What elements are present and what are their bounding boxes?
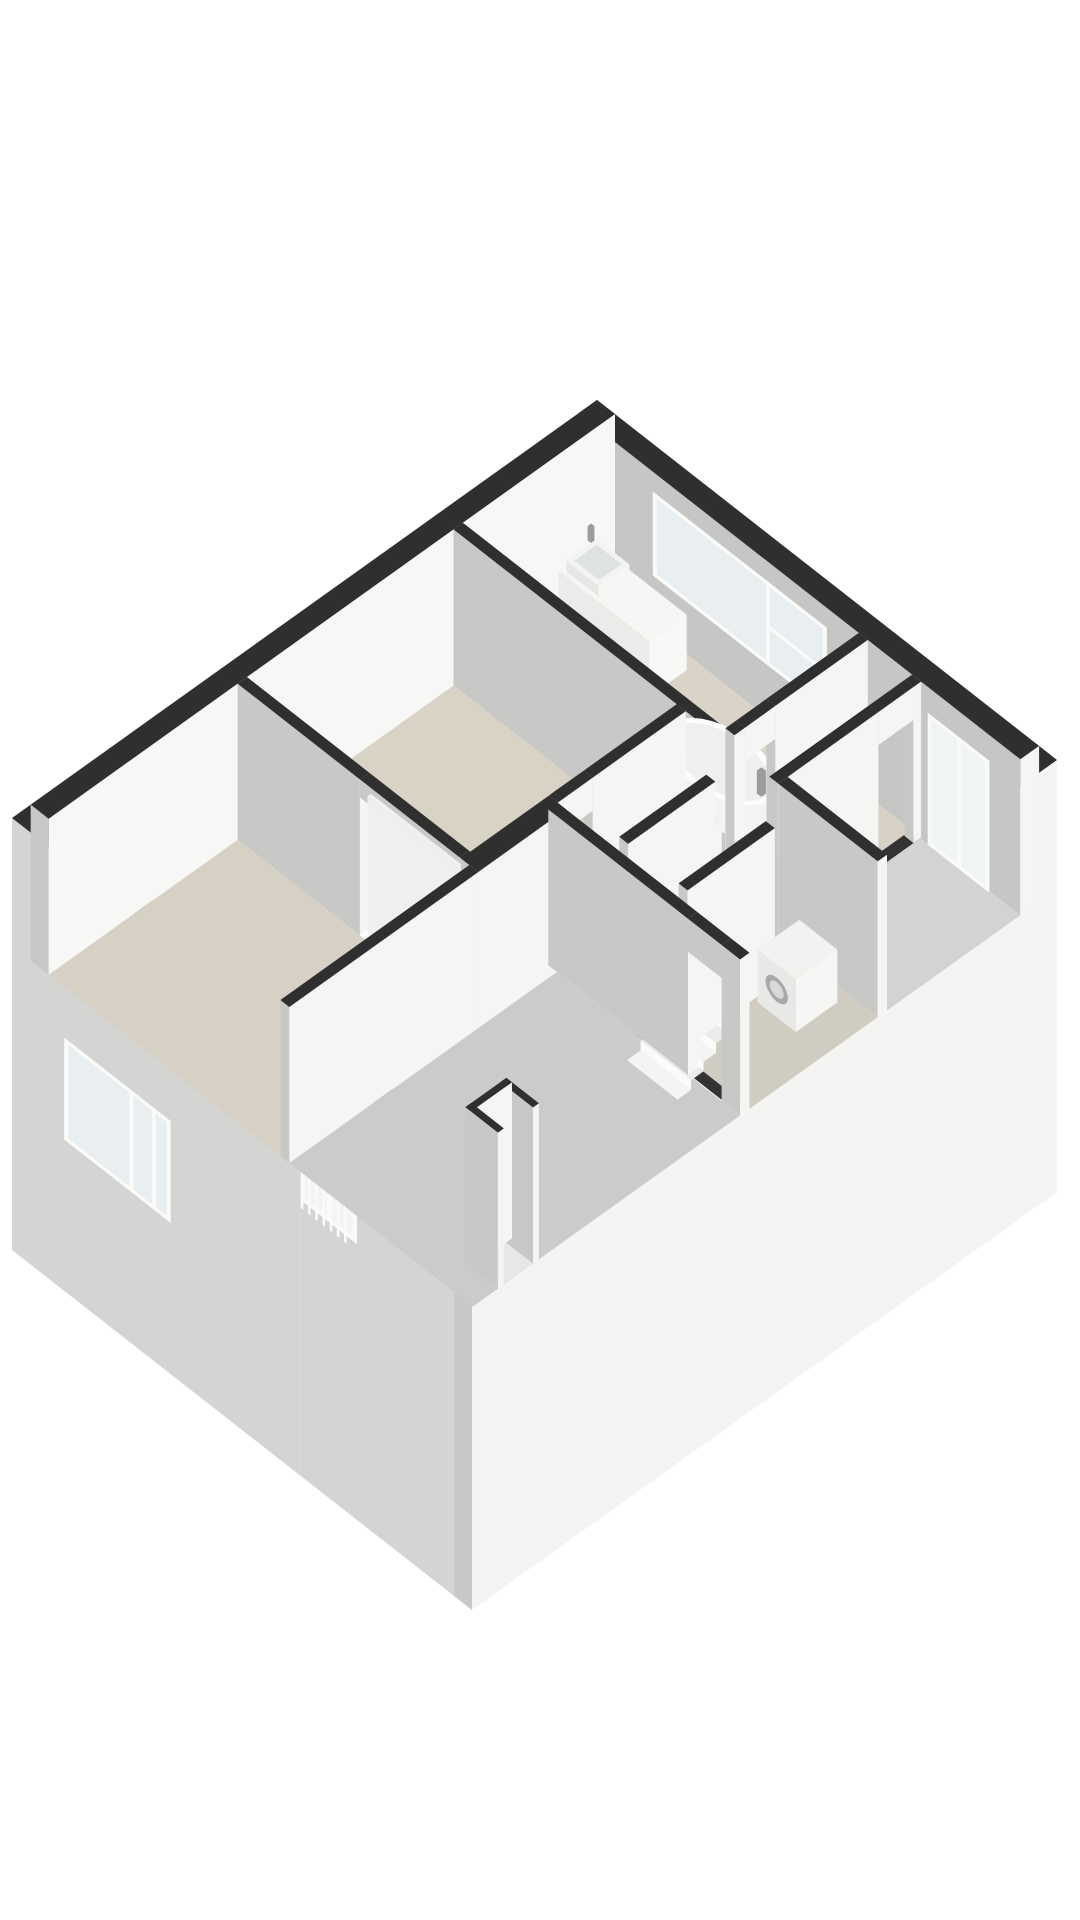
sw-skirt-window-mullion-1 (152, 1108, 156, 1209)
bathtub-faucet-face-v (761, 771, 766, 797)
shaft2-wall-ne-face-v (533, 1103, 539, 1263)
shaft2-wall-sw-face-u (465, 1107, 498, 1289)
bathtub-faucet-face-u (757, 771, 762, 797)
floorplan-viewport (0, 0, 1080, 1920)
sink-faucet-face-v (591, 526, 595, 543)
sink-faucet-face-u (588, 526, 591, 543)
wall-greyroom-ne-face-v (740, 953, 749, 1116)
wall-bedroom3-sw-face-v (878, 855, 887, 1018)
bathroom-window-mullion-0 (766, 582, 770, 665)
shaft2-wall-sw-face-v (498, 1128, 504, 1288)
wall-nw-exterior-face-u (31, 805, 49, 975)
sw-skirt-window-mullion-0 (130, 1091, 134, 1192)
floorplan-scene (0, 0, 1080, 1920)
wall-ne-exterior-face-v (1020, 746, 1039, 915)
ne-juliet-door-mullion-0 (957, 737, 961, 868)
wall-greyroom-ne-face-u (722, 945, 741, 1116)
wall-bedroom3-nw-face-v (913, 682, 921, 843)
wall-bedroom2-se-face-u (280, 1000, 289, 1163)
wall-sw-exterior-face-u (301, 1200, 357, 1520)
